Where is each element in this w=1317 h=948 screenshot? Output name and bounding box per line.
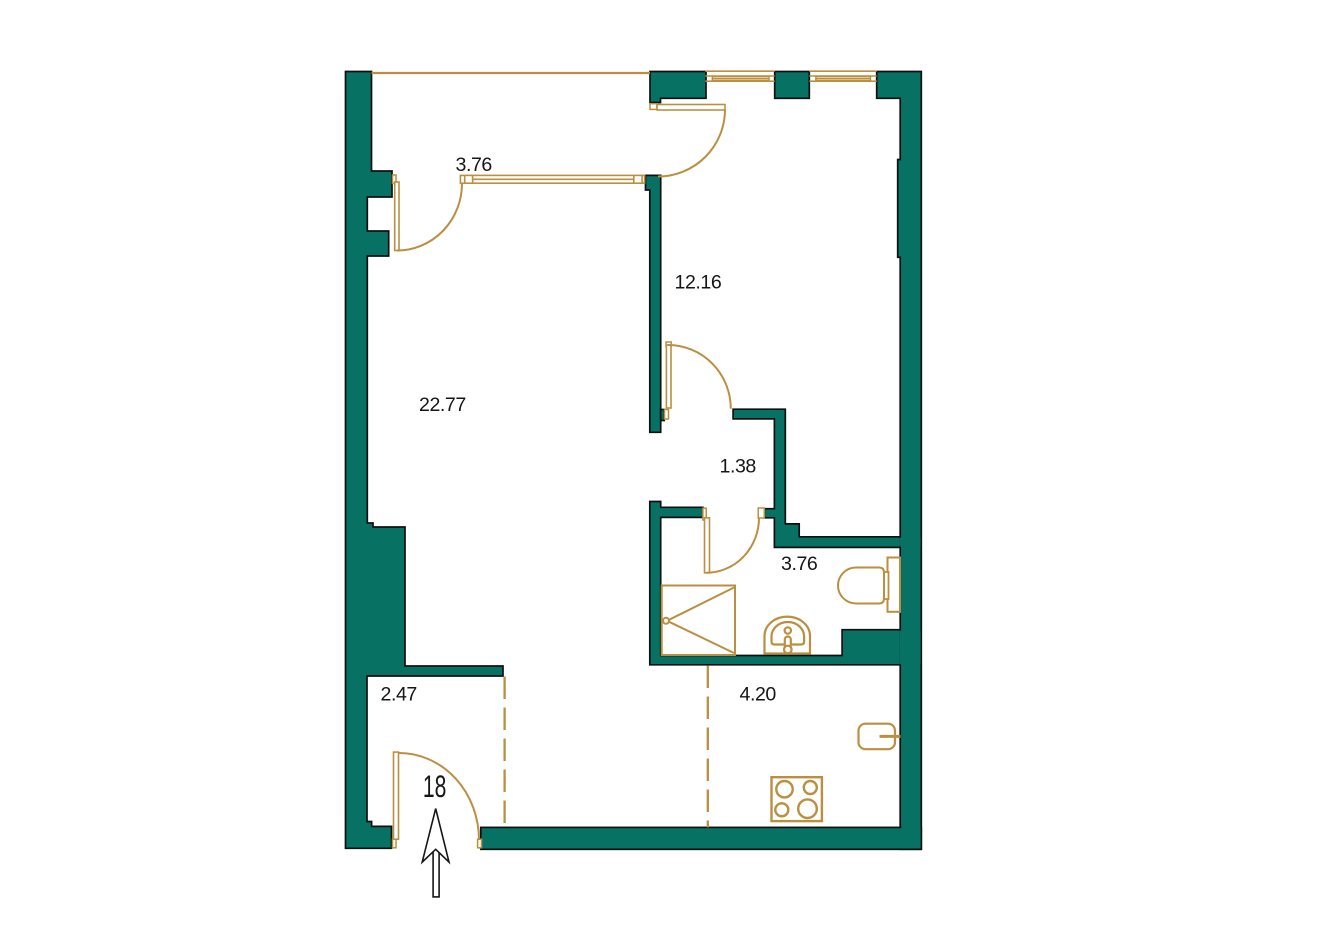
svg-text:22.77: 22.77: [419, 394, 466, 416]
svg-text:1.38: 1.38: [720, 455, 757, 477]
svg-text:2.47: 2.47: [381, 684, 417, 706]
svg-text:3.76: 3.76: [456, 154, 493, 176]
svg-text:12.16: 12.16: [675, 271, 722, 293]
svg-text:4.20: 4.20: [740, 684, 777, 706]
svg-text:3.76: 3.76: [781, 553, 818, 575]
svg-text:18: 18: [423, 768, 447, 804]
